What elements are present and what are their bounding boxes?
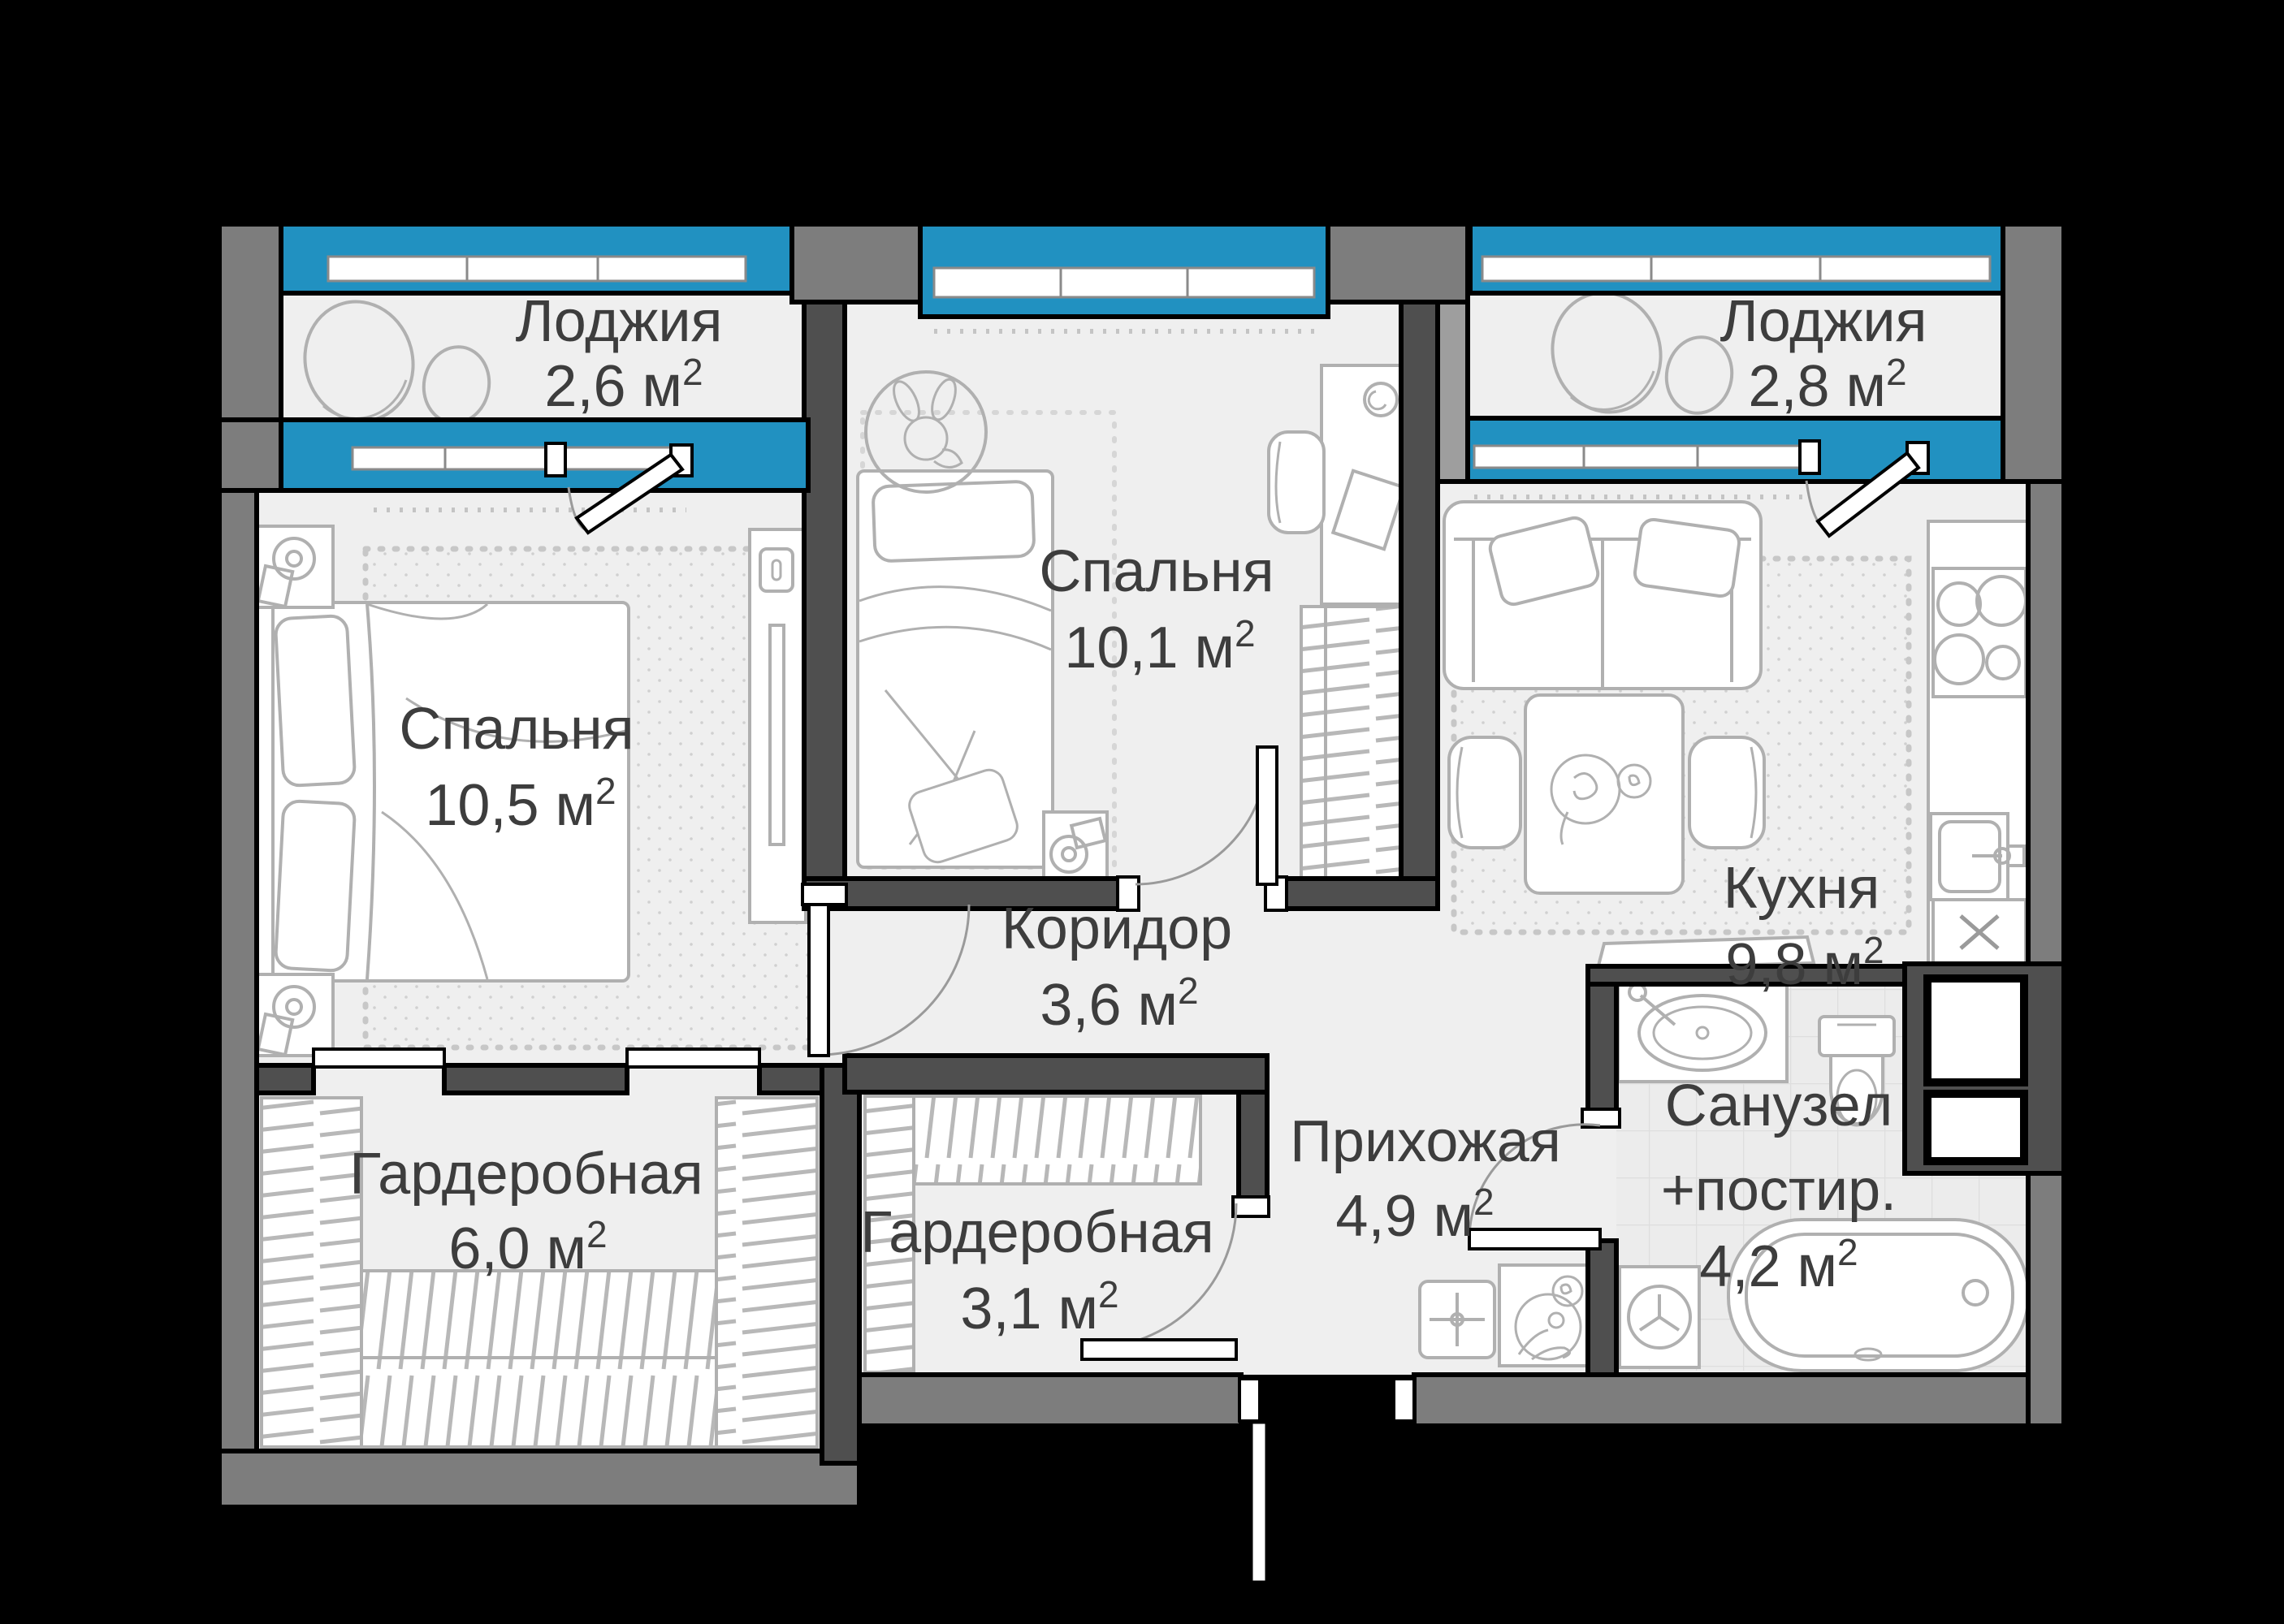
wall-bathroom-left [1588, 1241, 1616, 1375]
nightstand-icon [1044, 812, 1107, 880]
closet-icon [1301, 607, 1403, 879]
svg-text:Гардеробная: Гардеробная [349, 1142, 703, 1207]
window-loggia-right-top [1470, 224, 2003, 293]
svg-text:Прихожая: Прихожая [1290, 1109, 1561, 1174]
svg-text:2,8 м2: 2,8 м2 [1748, 351, 1906, 419]
window-loggia-left-top [281, 224, 792, 293]
svg-text:9,8 м2: 9,8 м2 [1725, 929, 1884, 997]
svg-text:Спальня: Спальня [399, 697, 634, 762]
vanity-sink-icon [1618, 984, 1787, 1082]
wall-left [219, 490, 257, 1451]
svg-text:Лоджия: Лоджия [1719, 289, 1927, 354]
wall-bathroom-left [1588, 984, 1616, 1122]
svg-text:6,0 м2: 6,0 м2 [448, 1213, 607, 1281]
wall-wardrobe-left-top [444, 1065, 627, 1093]
svg-text:+постир.: +постир. [1661, 1158, 1897, 1223]
nightstand-icon [257, 526, 333, 607]
svg-text:Санузел: Санузел [1665, 1073, 1893, 1138]
facade-pillar [1438, 302, 1468, 482]
svg-text:10,1 м2: 10,1 м2 [1064, 612, 1255, 680]
single-bed-icon [858, 471, 1053, 867]
svg-text:10,5 м2: 10,5 м2 [425, 770, 616, 838]
wall-wardrobe-left-top [759, 1065, 822, 1093]
vent-shaft [1905, 964, 2064, 1173]
svg-text:3,6 м2: 3,6 м2 [1040, 970, 1198, 1038]
dishwasher-icon [1933, 900, 2026, 965]
wall-between-bedrooms [804, 302, 845, 884]
kitchen-counter [1928, 521, 2028, 965]
shoe-cabinet-icon [1499, 1265, 1592, 1366]
floor-plan: Лоджия 2,6 м2 Спальня 10,1 м2 Лоджия 2,8… [0, 0, 2284, 1624]
facade-pier [1328, 224, 1468, 302]
wall-right [2028, 482, 2064, 1426]
chair-icon [1689, 737, 1764, 848]
svg-text:Гардеробная: Гардеробная [860, 1200, 1214, 1265]
dining-table-icon [1525, 695, 1683, 893]
svg-text:4,9 м2: 4,9 м2 [1335, 1181, 1494, 1249]
svg-text:3,1 м2: 3,1 м2 [960, 1273, 1118, 1341]
wall-bedroom-middle-south [1267, 879, 1438, 909]
chair-icon [1449, 737, 1521, 848]
wall-bedroom-kitchen [1401, 302, 1438, 909]
wall-bottom-left [219, 1451, 859, 1507]
wall-between-wardrobes [822, 1065, 859, 1463]
chair-icon [1269, 432, 1324, 533]
wall-wardrobe-left-top [257, 1065, 314, 1093]
svg-text:Кухня: Кухня [1724, 856, 1880, 921]
floor-plan-canvas: Лоджия 2,6 м2 Спальня 10,1 м2 Лоджия 2,8… [0, 0, 2284, 1624]
wall-wardrobe-middle-top [845, 1056, 1267, 1092]
tv-cabinet-icon [750, 529, 806, 922]
desk-icon [1322, 365, 1405, 604]
wall-bottom-middle [859, 1375, 1241, 1426]
svg-text:Спальня: Спальня [1039, 539, 1274, 604]
stool-icon [1420, 1281, 1495, 1358]
wall-wardrobe-middle-right [1239, 1092, 1267, 1203]
svg-text:2,6 м2: 2,6 м2 [544, 351, 703, 419]
facade-pier [792, 224, 920, 302]
stove-icon [1933, 568, 2026, 697]
sofa-icon [1444, 502, 1761, 689]
svg-text:Коридор: Коридор [1001, 896, 1232, 961]
washing-machine-icon [1620, 1267, 1699, 1367]
wall-bottom-right [1414, 1375, 2064, 1426]
nightstand-icon [257, 974, 333, 1056]
svg-text:Лоджия: Лоджия [515, 289, 722, 354]
wall-right-upper [2003, 224, 2064, 482]
svg-text:4,2 м2: 4,2 м2 [1699, 1231, 1858, 1299]
window-bedroom-middle [920, 224, 1328, 317]
